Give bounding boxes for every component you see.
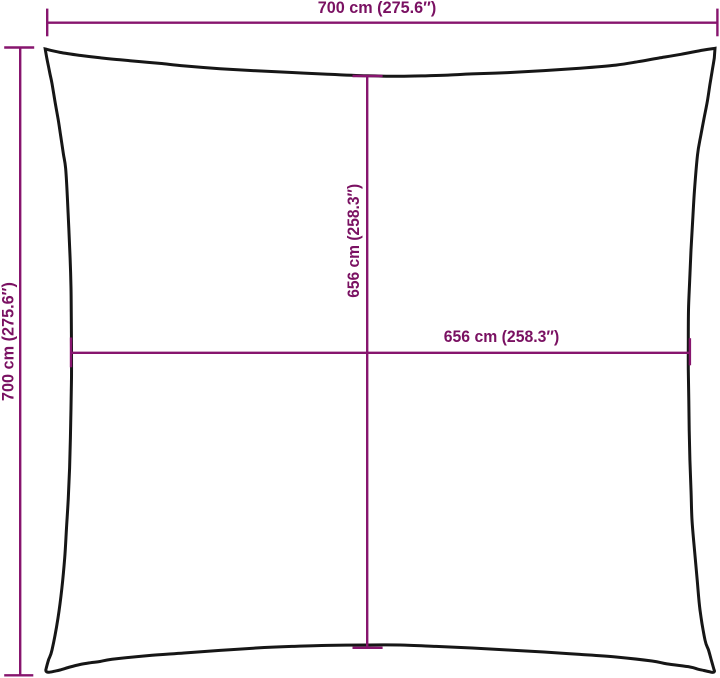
svg-text:656 cm (258.3″): 656 cm (258.3″) (444, 327, 560, 346)
svg-text:656 cm (258.3″): 656 cm (258.3″) (344, 184, 363, 298)
svg-text:700 cm (275.6″): 700 cm (275.6″) (318, 0, 437, 17)
svg-text:700 cm (275.6″): 700 cm (275.6″) (0, 282, 17, 401)
